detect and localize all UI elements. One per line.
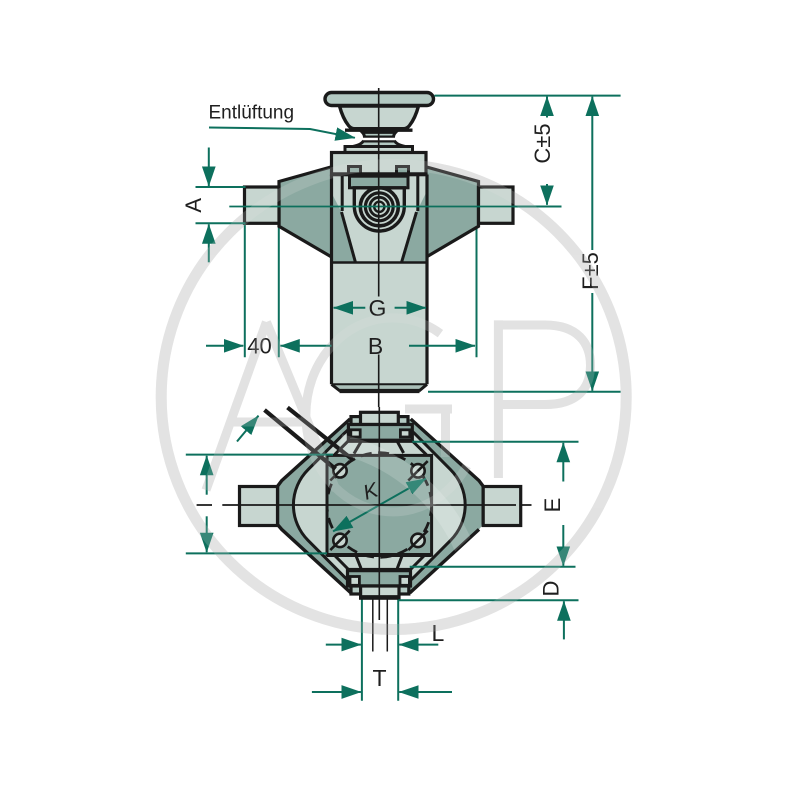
- svg-text:E: E: [540, 498, 565, 513]
- svg-text:T: T: [373, 665, 387, 691]
- svg-text:A: A: [181, 198, 206, 213]
- svg-text:B: B: [368, 333, 383, 359]
- svg-text:C±5: C±5: [530, 123, 555, 163]
- svg-text:Entlüftung: Entlüftung: [209, 103, 295, 124]
